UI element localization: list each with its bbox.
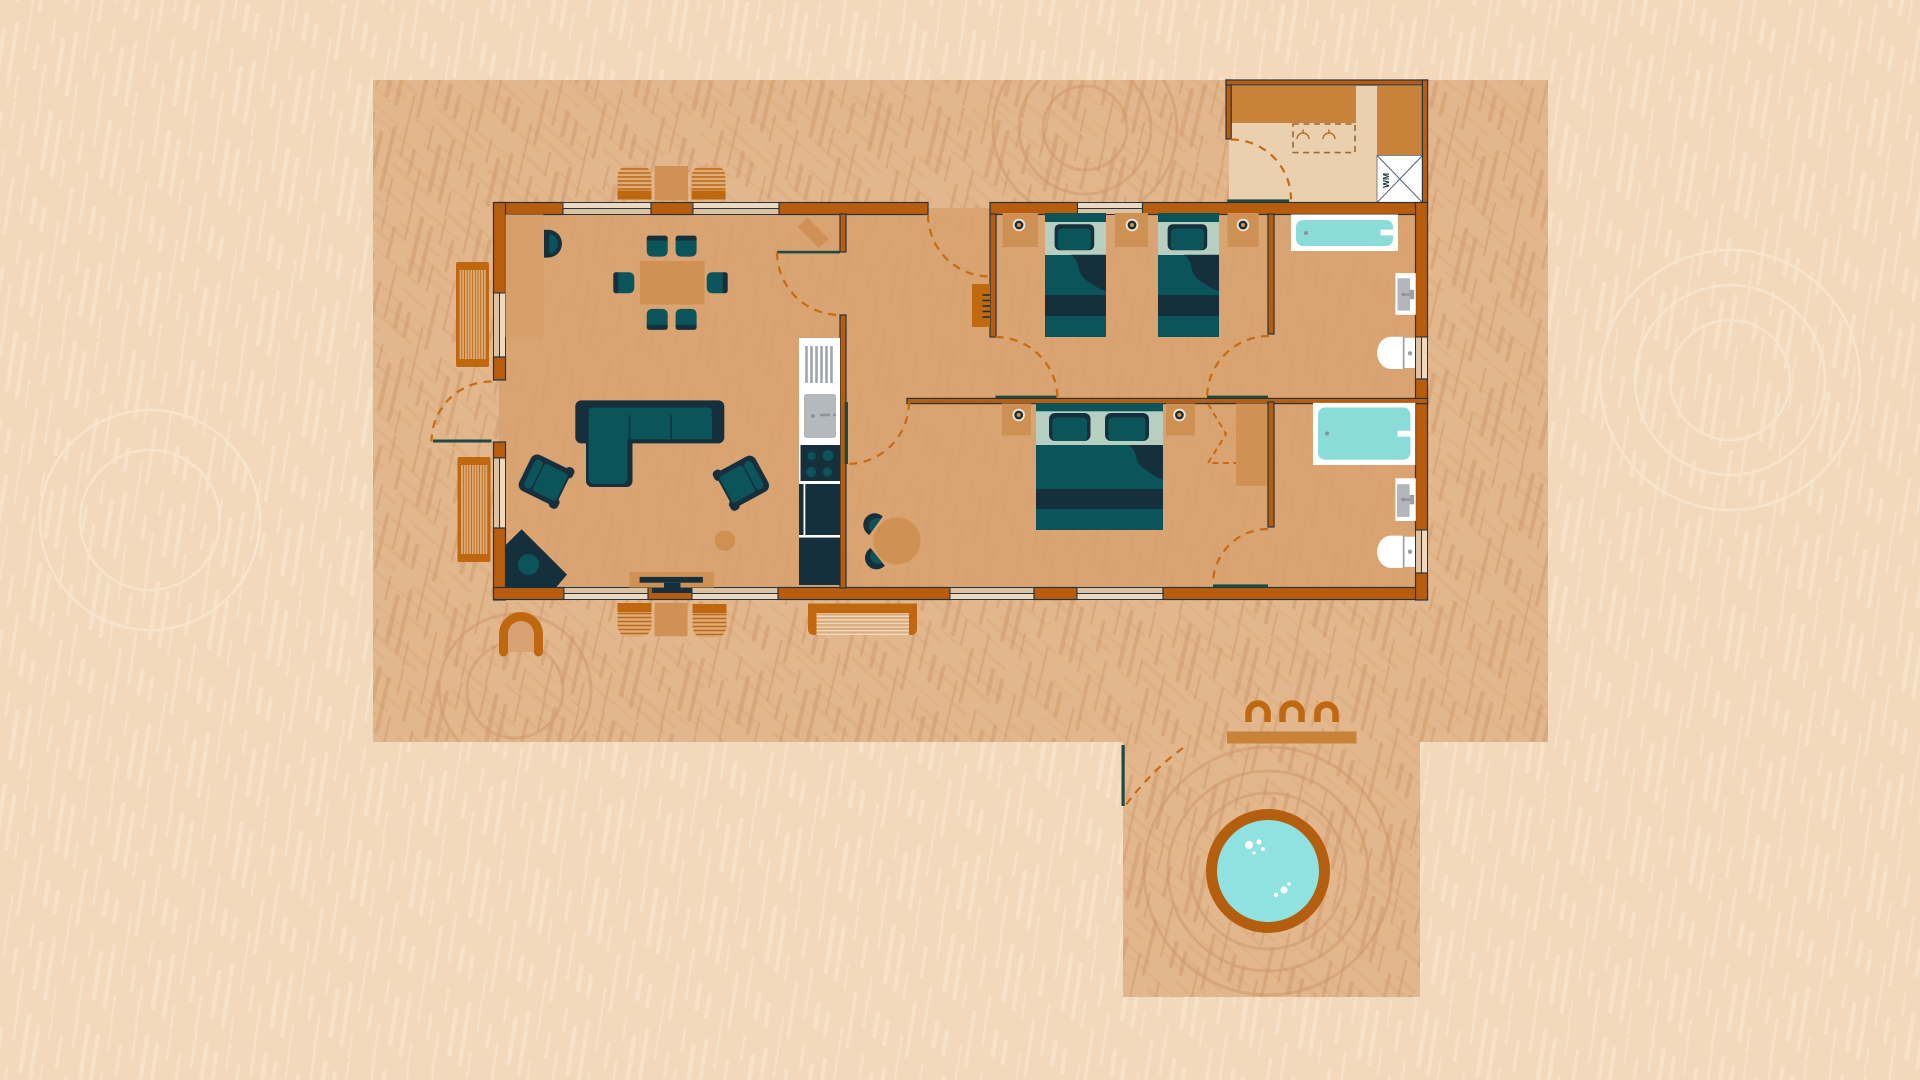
svg-text:WM: WM	[1381, 173, 1391, 188]
